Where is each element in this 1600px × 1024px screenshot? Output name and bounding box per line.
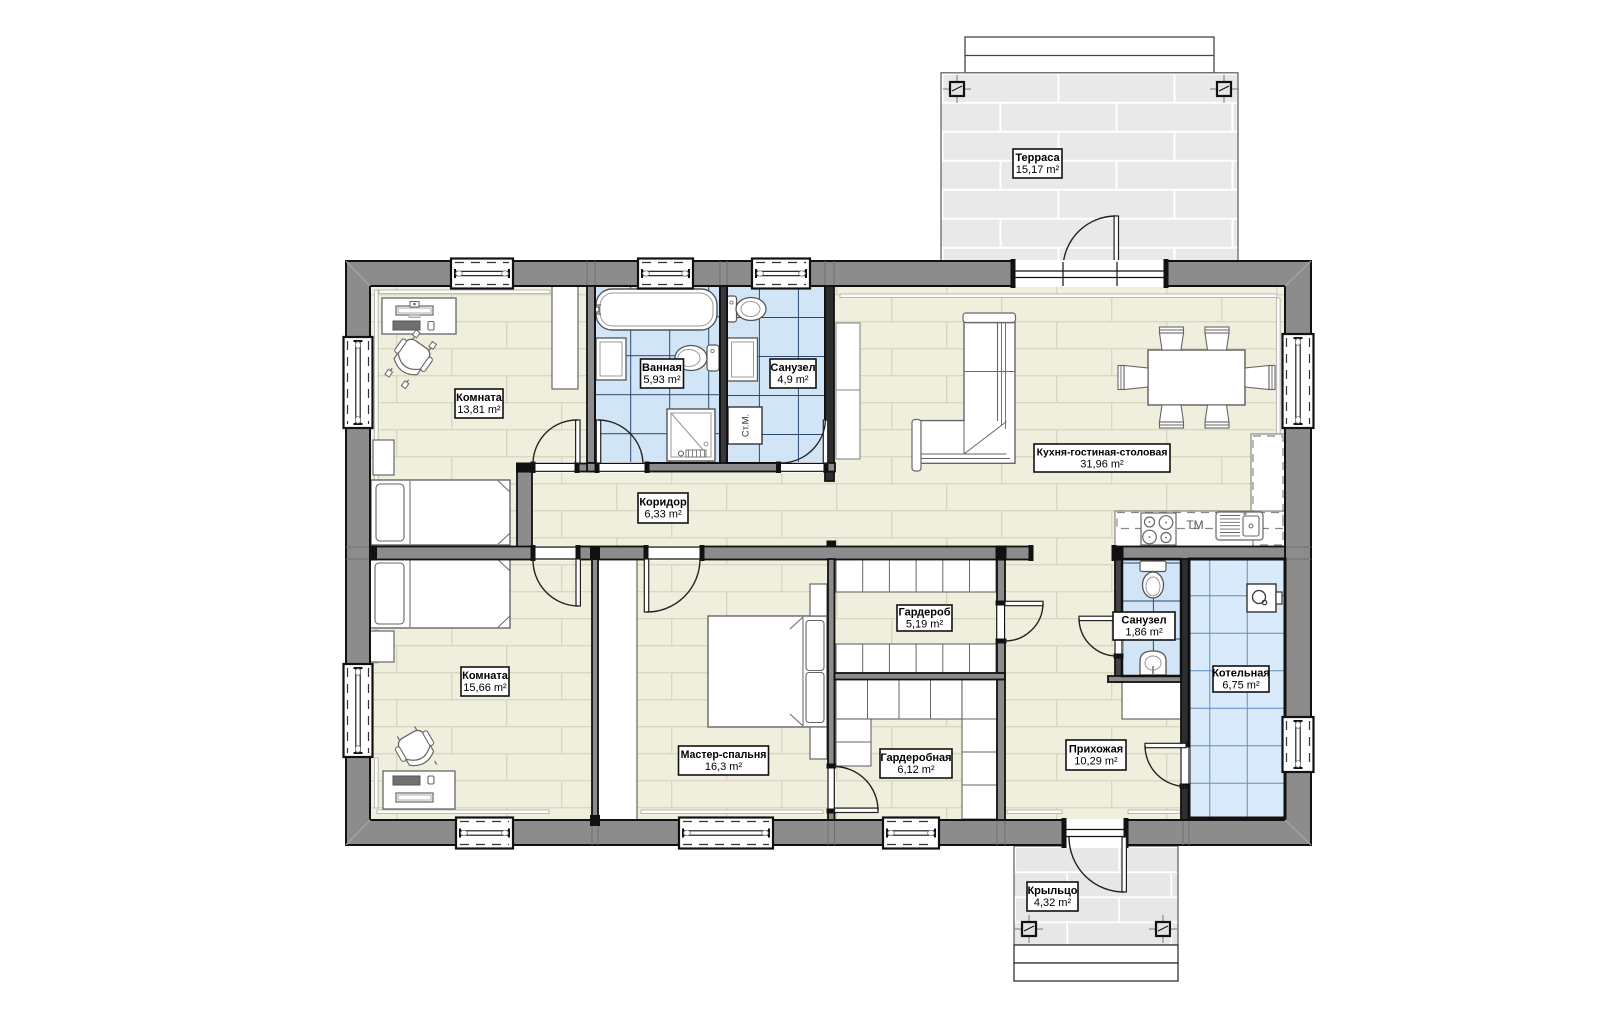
svg-text:5,93 m²: 5,93 m² [643, 374, 681, 386]
svg-text:4,32 m²: 4,32 m² [1034, 897, 1072, 909]
svg-text:15,66 m²: 15,66 m² [463, 682, 507, 694]
svg-text:6,75 m²: 6,75 m² [1222, 680, 1260, 692]
svg-text:1,86 m²: 1,86 m² [1125, 627, 1163, 639]
svg-text:Гардеробная: Гардеробная [880, 752, 951, 764]
svg-text:31,96 m²: 31,96 m² [1080, 459, 1124, 471]
svg-text:Комната: Комната [462, 670, 509, 682]
svg-text:Ванная: Ванная [642, 362, 682, 374]
svg-text:4,9 m²: 4,9 m² [777, 374, 809, 386]
svg-text:Крыльцо: Крыльцо [1027, 885, 1077, 897]
svg-text:6,33 m²: 6,33 m² [644, 509, 682, 521]
svg-text:Прихожая: Прихожая [1069, 744, 1123, 756]
svg-text:Коридор: Коридор [639, 497, 687, 509]
svg-text:13,81 m²: 13,81 m² [457, 404, 501, 416]
svg-text:5,19 m²: 5,19 m² [906, 619, 944, 631]
svg-text:Котельная: Котельная [1212, 668, 1270, 680]
svg-text:6,12 m²: 6,12 m² [897, 764, 935, 776]
svg-text:ТМ: ТМ [1186, 518, 1203, 532]
svg-text:16,3 m²: 16,3 m² [705, 761, 743, 773]
svg-text:Санузел: Санузел [1121, 615, 1166, 627]
svg-text:Ст.М.: Ст.М. [741, 414, 752, 437]
svg-text:Гардероб: Гардероб [899, 607, 951, 619]
svg-text:Санузел: Санузел [770, 362, 815, 374]
svg-text:Мастер-спальня: Мастер-спальня [681, 749, 767, 761]
svg-text:Терраса: Терраса [1015, 152, 1060, 164]
svg-text:Комната: Комната [456, 392, 503, 404]
svg-text:15,17 m²: 15,17 m² [1016, 164, 1060, 176]
svg-text:10,29 m²: 10,29 m² [1074, 756, 1118, 768]
svg-text:Кухня-гостиная-столовая: Кухня-гостиная-столовая [1037, 448, 1168, 459]
